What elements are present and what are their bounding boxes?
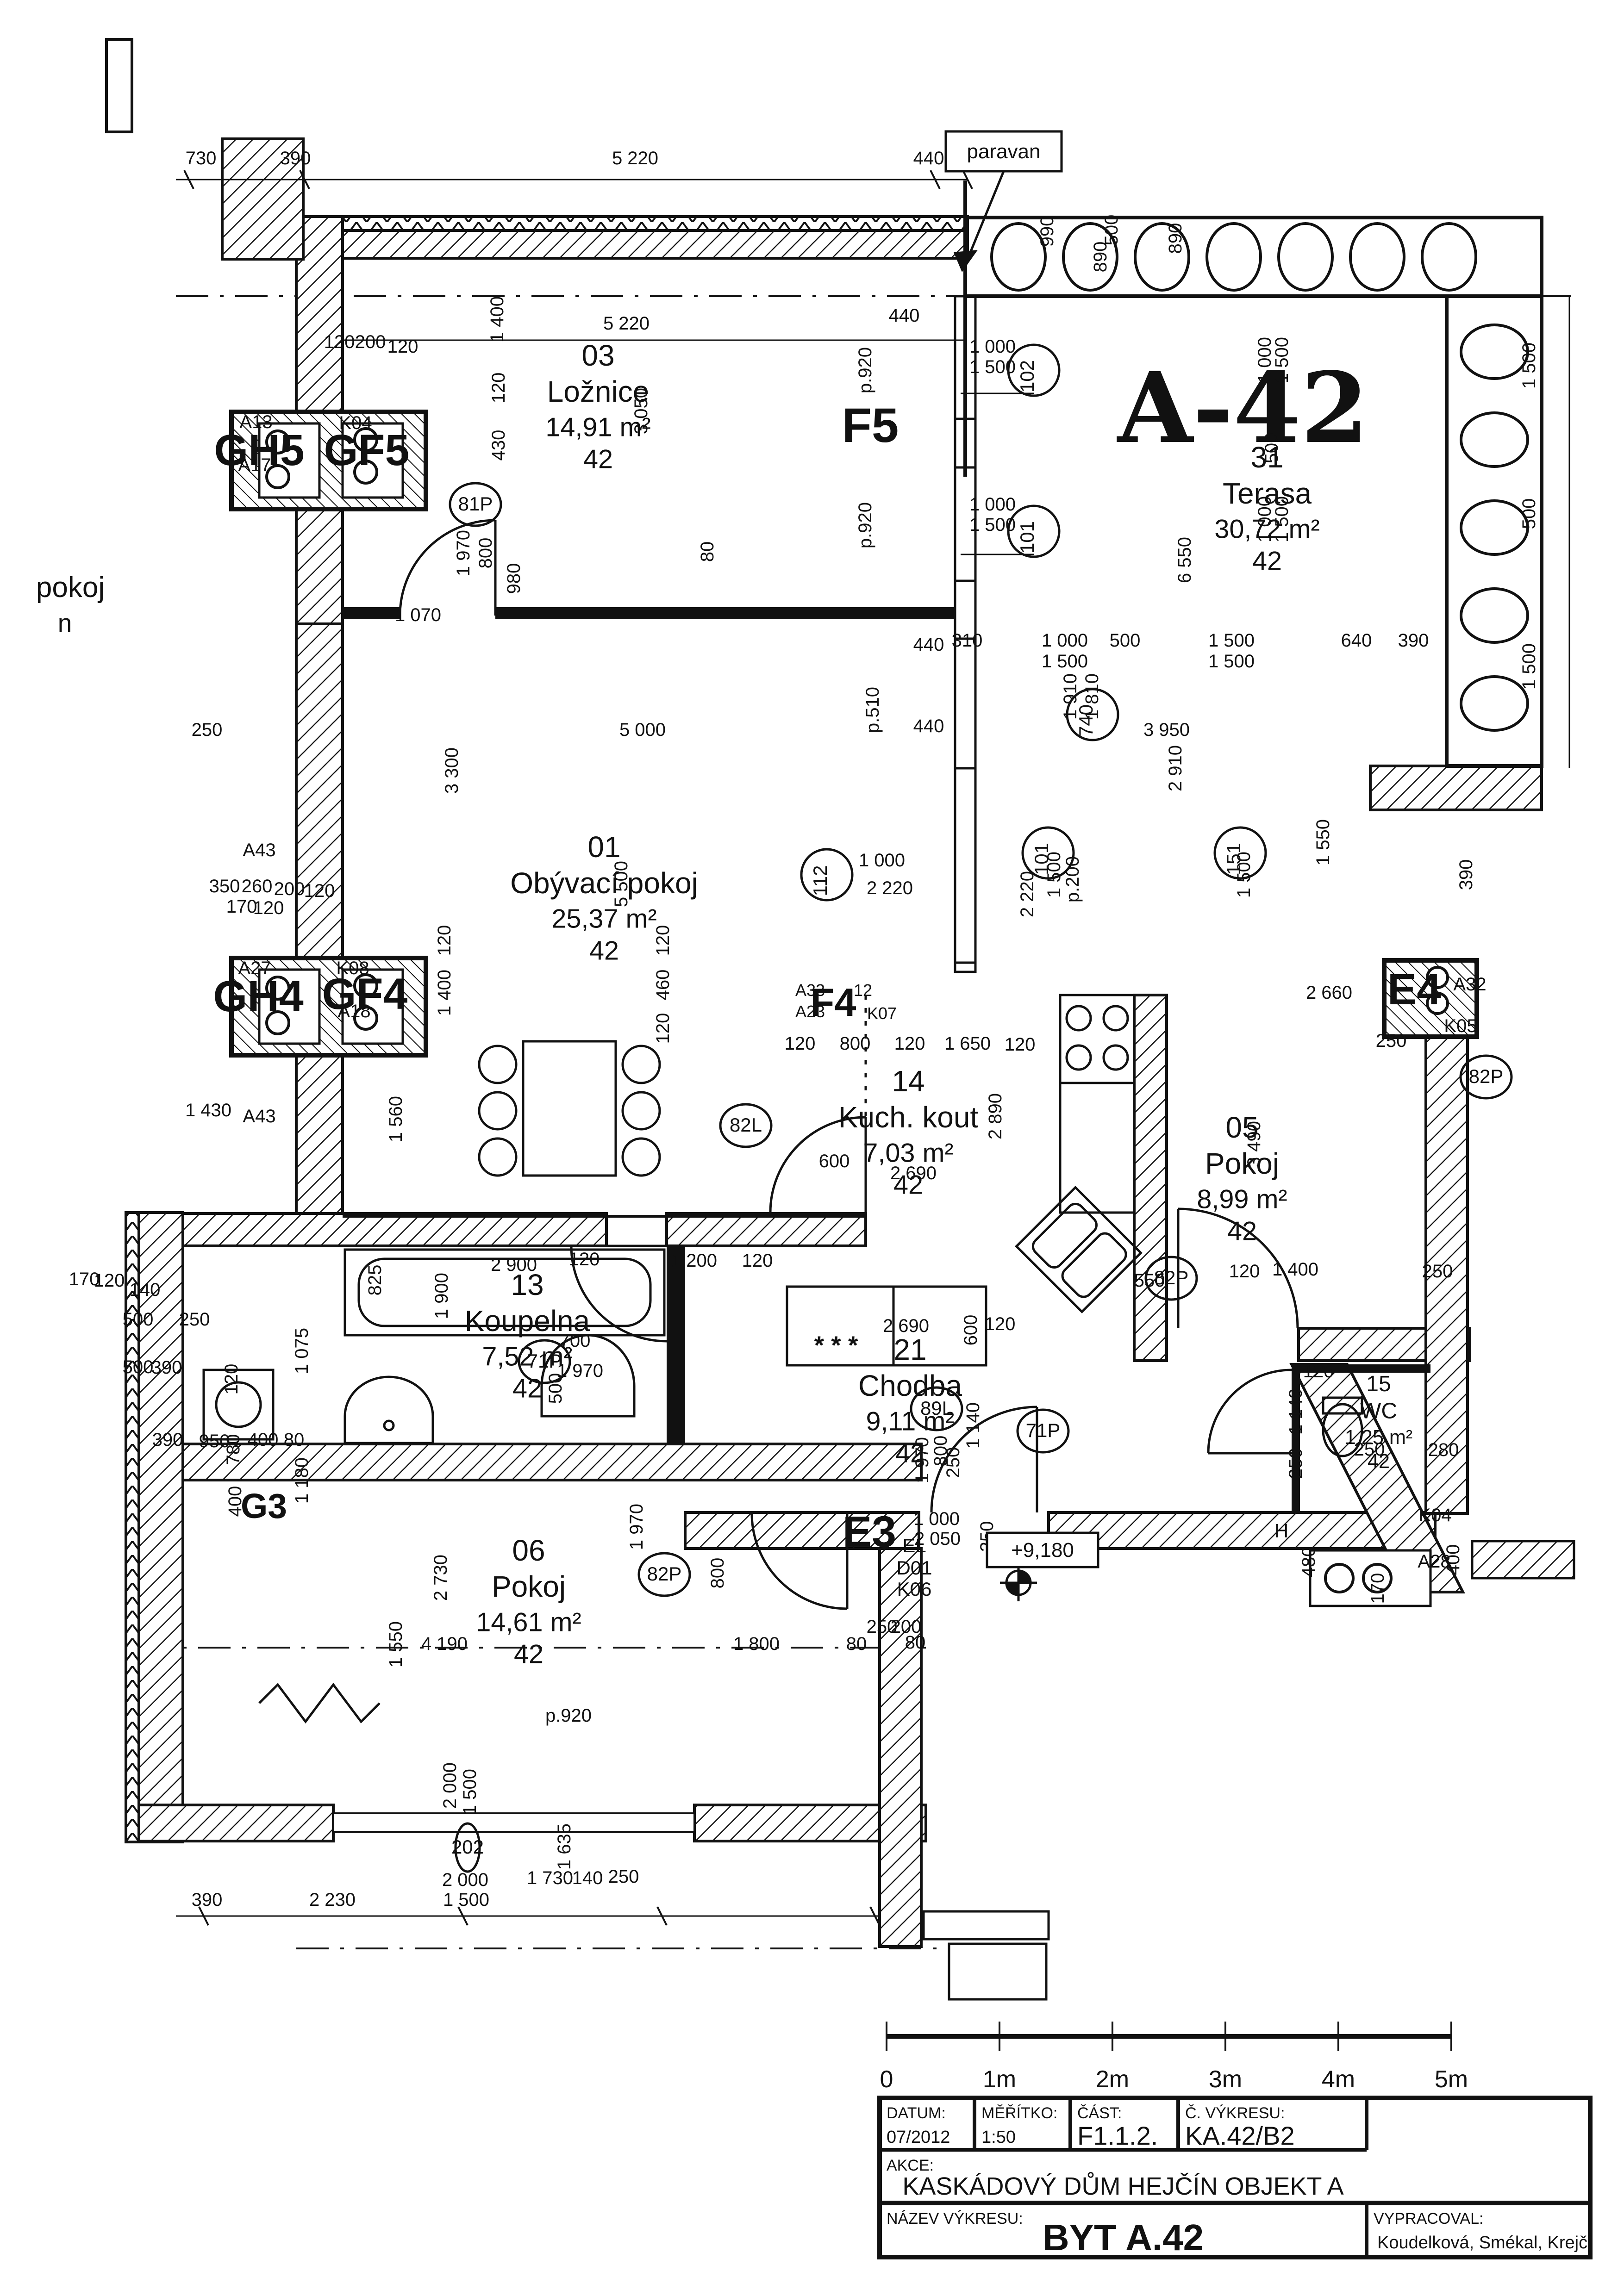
dimension-label: 3 050 <box>631 388 651 434</box>
dimension-label: 120 <box>985 1314 1016 1334</box>
dimension-label: 250 <box>179 1309 210 1330</box>
component-label: A23 <box>795 1002 825 1021</box>
scale-bar: 01m2m3m4m5m <box>880 2022 1468 2093</box>
dimension-label: 120 <box>304 881 335 901</box>
dimension-label: 3 490 <box>1244 1121 1264 1167</box>
reference-label: 82P <box>1154 1267 1189 1288</box>
dimension-label: p.920 <box>855 347 875 393</box>
dimension-label: 2 690 <box>883 1316 929 1336</box>
dimension-label: 120 <box>221 1364 242 1395</box>
dimension-label: 1 650 <box>944 1033 991 1054</box>
dimension-label: 890 <box>1090 242 1111 273</box>
datum-value: 07/2012 <box>887 2128 950 2147</box>
dimension-label: 390 <box>1456 859 1476 890</box>
reference-label: 71P <box>1026 1419 1061 1441</box>
dimension-label: 80 <box>905 1632 926 1653</box>
component-label: A18 <box>337 1001 370 1021</box>
dimension-label: 1 970 <box>453 530 474 576</box>
component-label: E3 <box>843 1507 896 1556</box>
akce-value: KASKÁDOVÝ DŮM HEJČÍN OBJEKT A <box>902 2172 1343 2200</box>
component-label: A33 <box>795 981 825 1000</box>
room-name: Obývací pokoj <box>510 866 698 900</box>
reference-label: 82P <box>647 1563 682 1585</box>
reference-label: 740 <box>1075 704 1097 737</box>
dimension-label: 120 <box>742 1251 773 1271</box>
dimension-label: 1 970 <box>912 1437 932 1483</box>
dimension-label: 5 500 <box>611 861 631 907</box>
dimension-label: 800 <box>840 1033 871 1054</box>
component-label: K05 <box>1444 1016 1477 1036</box>
dimension-label: 3 300 <box>442 747 462 794</box>
dimension-label: 120 <box>324 332 355 352</box>
component-label: K07 <box>867 1004 897 1023</box>
dimension-label: 500 <box>1110 630 1141 651</box>
dimension-label: 480 <box>1299 1547 1319 1578</box>
component-label: n <box>58 609 72 637</box>
scale-bar-label: 0 <box>880 2066 893 2093</box>
dimension-label: 2 000 <box>440 1762 460 1809</box>
dimension-label: 1 550 <box>1313 819 1333 865</box>
dimension-label: 460 <box>653 970 673 1001</box>
reference-label: 82P <box>1469 1065 1504 1087</box>
dimension-label: 5 000 <box>619 720 666 740</box>
dimension-label: 2 910 <box>1165 745 1186 791</box>
component-label: A32 <box>1453 974 1486 995</box>
reference-label: 151 <box>1223 843 1244 875</box>
dimension-label: 780 <box>223 1434 244 1465</box>
component-label: A43 <box>243 840 275 860</box>
room-number: 03 <box>581 339 614 372</box>
reference-label: 89L <box>920 1397 953 1419</box>
dimension-label: 3 950 <box>1143 720 1190 740</box>
dimension-label: 120 <box>894 1033 925 1054</box>
dimension-label: 1 140 <box>1286 1388 1306 1435</box>
room-apartment: 42 <box>1252 546 1282 576</box>
room-area: 14,61 m² <box>476 1607 581 1637</box>
component-label: D01 <box>896 1557 932 1579</box>
dimension-label: p.920 <box>855 502 875 548</box>
dimension-label: 120 <box>653 1013 673 1044</box>
reference-label: 101 <box>1016 521 1038 554</box>
dimension-label: 1 000 <box>969 336 1016 357</box>
room-area: 25,37 m² <box>551 904 656 933</box>
component-label: A28 <box>1418 1551 1450 1572</box>
dimension-label: 1 200 <box>671 1251 717 1271</box>
title-block-text: DATUM: 07/2012 MĚŘÍTKO: 1:50 ČÁST: F1.1.… <box>887 2104 1593 2258</box>
scale-bar-label: 2m <box>1096 2066 1129 2093</box>
scale-bar-label: 5m <box>1435 2066 1468 2093</box>
dimension-label: 390 <box>152 1430 183 1450</box>
dimension-label: 440 <box>913 716 944 736</box>
dimension-label: 600 <box>961 1315 981 1346</box>
scale-bar-label: 4m <box>1322 2066 1355 2093</box>
dimension-label: 4 190 <box>421 1634 468 1654</box>
dimension-label: 730 <box>186 148 217 168</box>
component-label: A17 <box>238 455 271 475</box>
reference-label: 101 <box>1031 843 1052 875</box>
dimension-label: 80 <box>284 1430 305 1450</box>
cvykresu-label: Č. VÝKRESU: <box>1185 2104 1285 2122</box>
component-label: GH4 <box>213 972 304 1021</box>
dimension-label: 1 180 <box>292 1457 312 1504</box>
dimension-label: 350 <box>209 876 240 896</box>
dimension-label: 390 <box>1398 630 1429 651</box>
dimension-label: 120 <box>569 1249 600 1269</box>
reference-label: 112 <box>809 865 831 896</box>
dimension-label: 2 730 <box>431 1555 451 1601</box>
dimension-label: 600 <box>819 1151 850 1171</box>
dimension-label: 1 500 <box>1519 342 1539 389</box>
dimension-label: 1 500 <box>1208 630 1255 651</box>
dimension-label: 1 500 <box>1208 651 1255 672</box>
dimension-label: 1 500 <box>460 1769 480 1815</box>
dimension-label: 1 800 <box>733 1634 780 1654</box>
dimension-label: 80 <box>846 1634 867 1654</box>
dimension-label: 5 220 <box>603 313 650 334</box>
dimension-label: 1 550 <box>386 1621 406 1668</box>
dimension-label: 2 690 <box>890 1163 937 1183</box>
component-label: A27 <box>238 958 271 978</box>
dimension-label: 1 500 <box>1519 643 1539 690</box>
dimension-label: 2 220 <box>1017 871 1037 917</box>
dimension-label: 800 <box>707 1558 728 1589</box>
dimension-label: 170 <box>226 896 257 917</box>
dimension-label: 1 430 <box>185 1100 231 1120</box>
dimension-label: 250 <box>1286 1448 1306 1479</box>
dimension-label: 500 <box>1262 433 1282 464</box>
apartment-title: A-42 <box>1117 351 1368 465</box>
dimension-label: 120 <box>434 925 455 956</box>
dimension-label: 1 500 <box>1042 651 1088 672</box>
annotation-label: paravan <box>967 140 1040 163</box>
component-label: K08 <box>336 958 369 978</box>
room-name: Pokoj <box>1205 1147 1279 1180</box>
dimension-label: 1 635 <box>554 1823 575 1870</box>
reference-label: 81P <box>458 493 493 515</box>
dimension-label: 200 <box>355 332 386 352</box>
meritko-value: 1:50 <box>981 2128 1016 2147</box>
cvykresu-value: KA.42/B2 <box>1185 2121 1295 2150</box>
dimension-label: 890 <box>1165 223 1186 254</box>
dimension-label: 2 660 <box>1306 983 1352 1003</box>
room-name: Pokoj <box>492 1570 566 1603</box>
room-apartment: 42 <box>1227 1216 1257 1246</box>
dimension-label: 120 <box>253 898 284 918</box>
dimension-label: 120 <box>1303 1361 1334 1381</box>
dimension-label: 440 <box>889 305 920 326</box>
dimension-label: 825 <box>365 1265 385 1296</box>
dimension-label: 400 <box>248 1430 279 1450</box>
component-label: K04 <box>339 413 372 433</box>
dimension-label: 260 <box>242 876 273 896</box>
dimension-label: 1 730 <box>527 1868 573 1888</box>
annotation-label: +9,180 <box>1011 1539 1074 1562</box>
component-label: G3 <box>241 1487 287 1525</box>
scale-bar-label: 1m <box>983 2066 1016 2093</box>
floor-plan-svg: A-42 03Ložnice14,91 m²4201Obývací pokoj2… <box>0 0 1624 2296</box>
dimension-label: 250 <box>943 1447 963 1478</box>
dimension-label: 1 000 <box>969 494 1016 515</box>
meritko-label: MĚŘÍTKO: <box>981 2104 1057 2122</box>
vypracoval-label: VYPRACOVAL: <box>1374 2210 1483 2228</box>
dimension-label: 440 <box>913 635 944 655</box>
component-label: F5 <box>842 398 899 453</box>
room-area: 8,99 m² <box>1197 1184 1287 1214</box>
component-label: E4 <box>1387 965 1441 1014</box>
reference-label: 202 <box>451 1836 484 1858</box>
dimension-label: 120 <box>488 373 509 404</box>
nazev-value: BYT A.42 <box>1043 2217 1204 2258</box>
component-label: pokoj <box>36 572 105 604</box>
scale-bar-label: 3m <box>1209 2066 1242 2093</box>
room-name: Kuch. kout <box>838 1101 979 1134</box>
room-number: 21 <box>893 1333 926 1366</box>
dimension-label: 1 500 <box>1272 337 1292 383</box>
dimension-label: 280 <box>1428 1440 1459 1460</box>
dimension-label: 1 500 <box>1272 496 1292 542</box>
reference-label: 82L <box>730 1114 762 1136</box>
dimension-label: 1 000 <box>913 1509 960 1529</box>
cast-label: ČÁST: <box>1077 2104 1122 2122</box>
dimension-label: 1 075 <box>292 1328 312 1374</box>
dimension-label: 390 <box>280 148 311 168</box>
furniture <box>204 995 1362 1722</box>
component-label: 12 <box>854 981 872 1000</box>
dimension-label: 140 <box>572 1868 603 1888</box>
component-label: A13 <box>239 412 272 432</box>
dimension-label: 500 <box>123 1357 154 1377</box>
room-number: 01 <box>587 830 620 864</box>
dimension-label: 250 <box>608 1867 639 1887</box>
dimension-label: 1 400 <box>1272 1259 1318 1280</box>
cast-value: F1.1.2. <box>1077 2121 1158 2150</box>
dimension-label: 500 <box>1519 498 1539 529</box>
akce-label: AKCE: <box>887 2157 934 2174</box>
dimension-label: 500 <box>123 1309 154 1330</box>
dimension-label: 2 000 <box>442 1870 488 1890</box>
dimension-label: 390 <box>192 1890 223 1910</box>
dimension-label: 2 890 <box>985 1093 1006 1139</box>
dimension-label: 1 900 <box>431 1273 452 1319</box>
facade-glazing <box>954 171 1004 972</box>
dimension-label: 2 900 <box>491 1255 537 1275</box>
dimension-label: 310 <box>952 630 983 651</box>
dimension-label: 640 <box>1341 630 1372 651</box>
dimension-label: 2 220 <box>867 878 913 898</box>
room-number: 14 <box>892 1064 924 1098</box>
dimension-label: 390 <box>151 1357 182 1378</box>
dimension-label: 500 <box>1101 215 1122 246</box>
dimension-label: 80 <box>697 541 718 562</box>
dimension-label: 990 <box>1037 216 1057 247</box>
room-apartment: 42 <box>583 444 613 474</box>
reference-label: 71P <box>527 1350 562 1372</box>
room-name: WC <box>1360 1399 1397 1424</box>
room-number: 15 <box>1366 1372 1391 1396</box>
dimension-label: 120 <box>653 925 673 956</box>
dimension-label: 1 400 <box>434 970 455 1016</box>
dimension-label: 2 230 <box>309 1890 356 1910</box>
drawing-sheet: A-42 03Ložnice14,91 m²4201Obývací pokoj2… <box>0 0 1624 2296</box>
dimension-label: 800 <box>475 538 496 569</box>
dimension-label: 6 550 <box>1174 537 1195 583</box>
room-number: 06 <box>512 1534 545 1567</box>
room-apartment: 42 <box>589 936 619 965</box>
nazev-label: NÁZEV VÝKRESU: <box>887 2210 1023 2228</box>
dimension-label: p.510 <box>862 687 883 733</box>
datum-label: DATUM: <box>887 2104 946 2122</box>
dimension-label: 1 970 <box>626 1504 647 1550</box>
dimension-label: 250 <box>192 720 223 740</box>
dimension-label: 250 <box>1376 1031 1407 1051</box>
dimension-label: 1 500 <box>443 1890 489 1910</box>
component-label: A43 <box>243 1106 275 1126</box>
dimension-label: 1 560 <box>386 1096 406 1142</box>
component-label: * * * <box>814 1331 858 1359</box>
dimension-label: p.920 <box>545 1705 592 1726</box>
component-label: EL <box>902 1535 926 1556</box>
dimension-label: 250 <box>1354 1439 1385 1460</box>
dimension-label: 1 000 <box>859 850 905 871</box>
component-label: H <box>1274 1520 1288 1542</box>
room-apartment: 42 <box>514 1639 543 1669</box>
dimension-label: 980 <box>504 563 524 594</box>
dimension-label: 120 <box>785 1033 816 1054</box>
dimension-label: 120 <box>387 336 418 357</box>
dimension-label: 440 <box>913 148 944 168</box>
dimension-label: 1 000 <box>1042 630 1088 651</box>
dimension-label: 120 <box>1229 1261 1260 1282</box>
dimension-label: 250 <box>1422 1261 1453 1282</box>
dimension-label: 1 070 <box>395 605 441 625</box>
dimension-label: 120 <box>94 1270 125 1291</box>
dimension-label: 140 <box>130 1280 161 1300</box>
reference-label: 102 <box>1016 360 1038 392</box>
dimension-label: 430 <box>488 430 509 461</box>
component-label: K06 <box>897 1578 932 1600</box>
dimension-label: 200 <box>274 879 305 899</box>
dimension-label: 120 <box>1005 1034 1036 1055</box>
dimension-label: 5 220 <box>612 148 658 168</box>
dimension-label: 170 <box>1368 1573 1388 1604</box>
dimension-label: 1 140 <box>963 1402 983 1449</box>
component-label: K04 <box>1418 1505 1451 1525</box>
vypracoval-value: Koudelková, Smékal, Krejčí <box>1377 2233 1593 2252</box>
dimension-label: 1 400 <box>487 296 507 342</box>
